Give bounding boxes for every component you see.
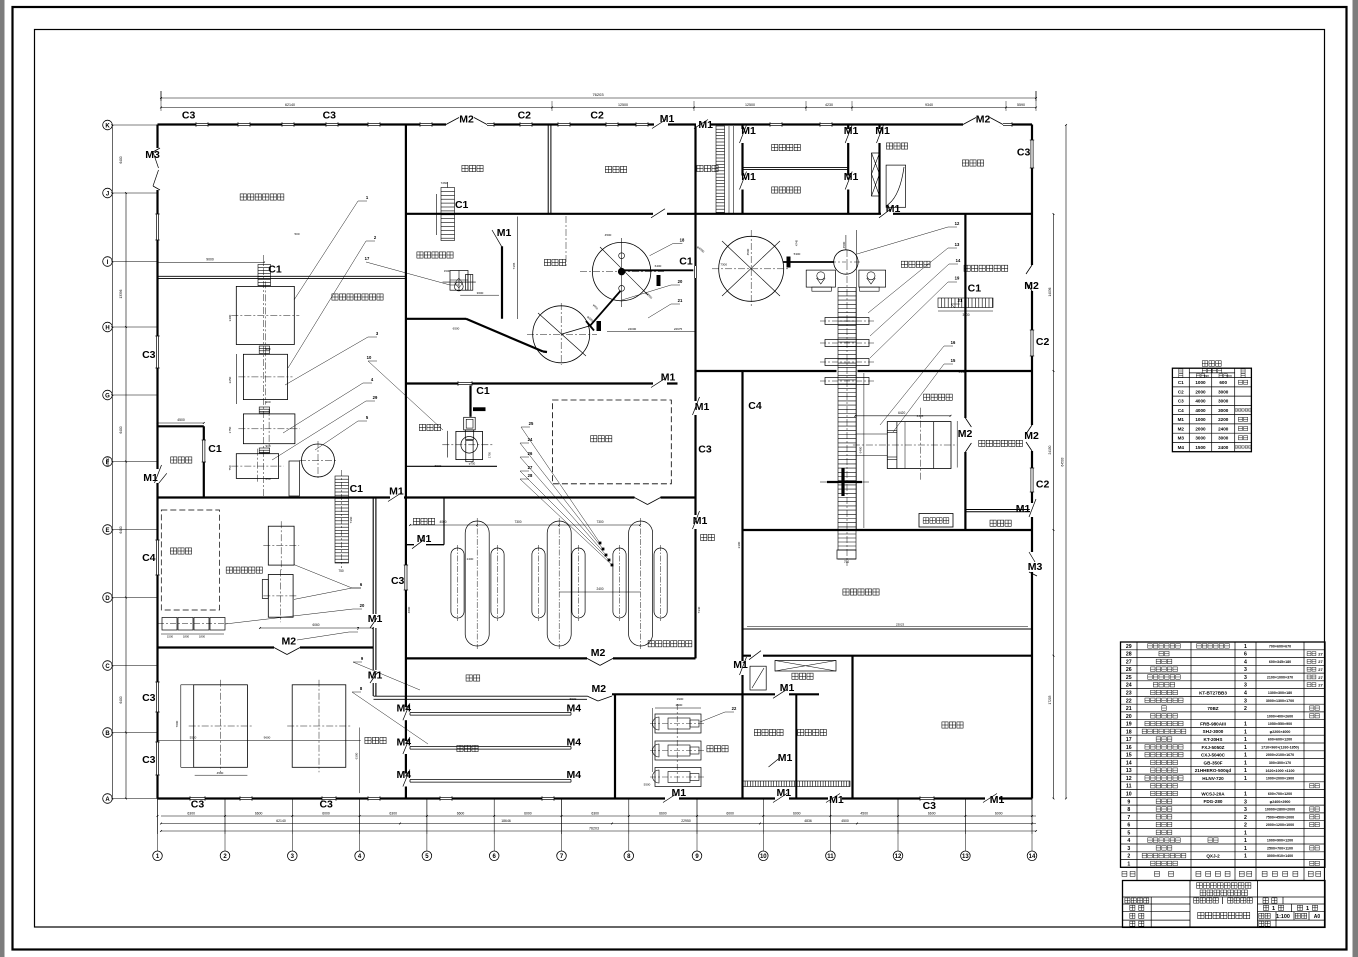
svg-text:10: 10	[367, 355, 372, 360]
svg-text:3: 3	[1244, 799, 1247, 805]
svg-text:C3: C3	[142, 754, 156, 766]
svg-text:28: 28	[1126, 652, 1132, 658]
svg-text:3000: 3000	[1195, 436, 1206, 441]
svg-text:6000: 6000	[524, 811, 532, 815]
svg-text:M1: M1	[698, 119, 713, 131]
svg-text:C1: C1	[679, 256, 693, 268]
svg-text:24000: 24000	[628, 327, 637, 331]
svg-text:1750: 1750	[228, 426, 232, 433]
svg-text:2400: 2400	[1218, 445, 1229, 450]
svg-text:1000: 1000	[1195, 417, 1206, 422]
svg-text:2400: 2400	[596, 587, 603, 591]
svg-text:D: D	[105, 596, 110, 602]
svg-text:13: 13	[1126, 768, 1132, 774]
svg-text:C3: C3	[923, 800, 937, 812]
svg-text:2500×700×1100: 2500×700×1100	[1267, 847, 1293, 851]
svg-text:300×300×170: 300×300×170	[1269, 761, 1291, 765]
svg-text:22: 22	[732, 706, 737, 711]
svg-text:2000×2100×1670: 2000×2100×1670	[1266, 753, 1294, 757]
svg-text:68600: 68600	[106, 457, 110, 466]
svg-text:M1: M1	[1016, 503, 1031, 515]
svg-text:M1: M1	[660, 113, 675, 125]
svg-text:C1: C1	[476, 385, 490, 397]
svg-text:6300: 6300	[591, 811, 599, 815]
svg-text:20: 20	[360, 603, 365, 608]
svg-text:10: 10	[760, 854, 767, 860]
svg-text:22950: 22950	[681, 819, 691, 823]
svg-text:M3: M3	[1028, 561, 1043, 573]
svg-text:14036: 14036	[1048, 287, 1052, 296]
svg-text:11: 11	[827, 854, 834, 860]
svg-text:M1: M1	[693, 515, 708, 527]
svg-text:14: 14	[956, 258, 961, 263]
svg-text:2400: 2400	[467, 557, 474, 561]
svg-text:H: H	[105, 325, 109, 331]
svg-text:1: 1	[1244, 760, 1247, 766]
svg-text:4836: 4836	[804, 819, 812, 823]
svg-text:C1: C1	[1178, 380, 1184, 385]
svg-text:62140: 62140	[276, 819, 286, 823]
svg-text:2: 2	[1244, 823, 1247, 829]
svg-text:M1: M1	[417, 533, 432, 545]
svg-text:2000: 2000	[1195, 426, 1206, 431]
svg-text:650: 650	[265, 477, 270, 481]
svg-text:B: B	[105, 731, 110, 737]
svg-text:3: 3	[1244, 667, 1247, 673]
svg-text:6350: 6350	[959, 370, 966, 374]
svg-text:3000×910×1400: 3000×910×1400	[1267, 854, 1293, 858]
svg-text:2250: 2250	[228, 376, 232, 383]
svg-text:2100×1000×370: 2100×1000×370	[1267, 676, 1293, 680]
svg-text:M1: M1	[143, 472, 158, 484]
svg-text:12500: 12500	[618, 103, 628, 107]
svg-text:3: 3	[1244, 675, 1247, 681]
svg-text:1500: 1500	[1195, 445, 1206, 450]
svg-text:2300: 2300	[737, 541, 741, 548]
svg-text:22975: 22975	[674, 327, 683, 331]
svg-text:7360: 7360	[349, 516, 353, 523]
svg-text:1: 1	[1244, 838, 1247, 844]
svg-text:FDG-280: FDG-280	[1204, 799, 1223, 804]
svg-text:5: 5	[1127, 830, 1130, 836]
svg-text:GB-350F: GB-350F	[1204, 760, 1223, 765]
svg-text:27: 27	[1126, 659, 1132, 665]
svg-text:C1: C1	[455, 199, 469, 211]
svg-text:26: 26	[528, 451, 533, 456]
svg-text:C3: C3	[182, 110, 196, 122]
svg-text:M1: M1	[990, 794, 1005, 806]
svg-text:19: 19	[1126, 722, 1132, 728]
svg-text:20: 20	[1126, 714, 1132, 720]
svg-text:700×600×670: 700×600×670	[1269, 645, 1291, 649]
svg-text:4500: 4500	[860, 811, 868, 815]
svg-text:M4: M4	[567, 703, 582, 715]
svg-text:1: 1	[1272, 906, 1275, 912]
svg-text:6000: 6000	[726, 811, 734, 815]
svg-text:C2: C2	[1178, 389, 1184, 394]
svg-text:21: 21	[678, 298, 683, 303]
svg-text:HLNV-720: HLNV-720	[1202, 776, 1224, 781]
svg-text:6000: 6000	[322, 811, 330, 815]
svg-text:4000: 4000	[439, 520, 446, 524]
svg-text:23023: 23023	[896, 623, 905, 627]
svg-text:1800: 1800	[183, 635, 190, 639]
svg-text:2000×1200×1000: 2000×1200×1000	[1266, 823, 1294, 827]
svg-text:φ2200×4000: φ2200×4000	[1270, 730, 1291, 734]
svg-text:4000: 4000	[1195, 399, 1206, 404]
svg-text:17: 17	[1126, 737, 1132, 743]
svg-text:M1: M1	[829, 794, 844, 806]
svg-text:C1: C1	[208, 443, 222, 455]
svg-text:C3: C3	[1178, 399, 1184, 404]
svg-text:SHJ-3000: SHJ-3000	[1203, 729, 1224, 734]
svg-text:62140: 62140	[285, 103, 295, 107]
svg-text:6400: 6400	[859, 446, 863, 453]
svg-text:M2: M2	[282, 636, 297, 648]
svg-text:6400: 6400	[119, 156, 123, 163]
svg-text:18646: 18646	[501, 819, 511, 823]
svg-text:6600: 6600	[255, 811, 263, 815]
svg-text:KT-20HS: KT-20HS	[1204, 737, 1223, 742]
svg-text:1: 1	[1244, 753, 1247, 759]
svg-text:9000: 9000	[206, 258, 214, 262]
svg-text:M3: M3	[1178, 436, 1185, 441]
svg-text:C3: C3	[323, 110, 337, 122]
svg-text:4000: 4000	[1195, 408, 1206, 413]
svg-text:1: 1	[1244, 737, 1247, 743]
svg-text:φ750: φ750	[469, 462, 476, 466]
svg-text:1: 1	[1244, 768, 1247, 774]
svg-text:600×345×180: 600×345×180	[1269, 660, 1291, 664]
svg-text:910: 910	[265, 444, 270, 448]
svg-text:QXJ-2: QXJ-2	[1206, 854, 1220, 859]
svg-text:13: 13	[955, 242, 960, 247]
svg-text:2: 2	[1244, 815, 1247, 821]
svg-text:M1: M1	[780, 682, 795, 694]
svg-text:6600: 6600	[457, 811, 465, 815]
svg-text:750: 750	[844, 560, 850, 564]
svg-text:K: K	[105, 123, 110, 129]
svg-text:M2: M2	[976, 114, 991, 126]
svg-text:6400: 6400	[119, 526, 123, 533]
svg-text:M2: M2	[958, 428, 973, 440]
svg-text:C2: C2	[1036, 479, 1050, 491]
svg-text:2900: 2900	[676, 703, 683, 707]
svg-text:5500: 5500	[570, 697, 577, 701]
svg-text:600×700×1200: 600×700×1200	[1268, 792, 1292, 796]
svg-text:29: 29	[373, 395, 378, 400]
svg-text:M2: M2	[1024, 280, 1039, 292]
svg-text:C2: C2	[590, 110, 604, 122]
svg-text:4500: 4500	[841, 819, 849, 823]
svg-text:7: 7	[1127, 815, 1130, 821]
svg-text:C: C	[105, 664, 110, 670]
svg-text:6300: 6300	[389, 811, 397, 815]
svg-text:27: 27	[1318, 659, 1323, 664]
svg-text:7260: 7260	[441, 181, 448, 185]
svg-text:6300: 6300	[187, 811, 195, 815]
svg-text:15: 15	[1126, 753, 1132, 759]
svg-text:KT-BT27BB3: KT-BT27BB3	[1199, 690, 1227, 695]
svg-text:3: 3	[1244, 698, 1247, 704]
svg-text:7340: 7340	[697, 606, 701, 613]
svg-text:4: 4	[1244, 691, 1247, 697]
svg-text:C3: C3	[391, 575, 405, 587]
svg-text:6300: 6300	[355, 752, 359, 759]
svg-text:3: 3	[1127, 846, 1130, 852]
svg-text:2900: 2900	[677, 697, 684, 701]
svg-text:15: 15	[951, 358, 956, 363]
svg-text:3: 3	[1244, 683, 1247, 689]
svg-text:1: 1	[1127, 861, 1130, 867]
svg-text:1: 1	[1244, 792, 1247, 798]
svg-text:1710×960×(1260-1850): 1710×960×(1260-1850)	[1261, 746, 1300, 750]
svg-text:C2: C2	[518, 110, 532, 122]
svg-text:29: 29	[1126, 644, 1132, 650]
svg-text:2000: 2000	[1195, 389, 1206, 394]
svg-text:3400: 3400	[228, 314, 232, 321]
svg-text:1000: 1000	[1195, 380, 1206, 385]
svg-text:J: J	[106, 191, 109, 197]
svg-text:M2: M2	[459, 114, 474, 126]
svg-text:21: 21	[1126, 706, 1132, 712]
svg-text:φ2400×2900: φ2400×2900	[1270, 800, 1291, 804]
svg-text:C4: C4	[1178, 408, 1184, 413]
svg-text:FXJ-5050Z: FXJ-5050Z	[1202, 745, 1225, 750]
svg-text:M1: M1	[741, 171, 756, 183]
svg-text:3000×1300×1700: 3000×1300×1700	[1266, 699, 1294, 703]
svg-text:3000: 3000	[1218, 408, 1229, 413]
svg-text:10000×2800×2000: 10000×2800×2000	[1265, 808, 1295, 812]
svg-text:18: 18	[680, 238, 685, 243]
svg-text:2200: 2200	[1218, 417, 1229, 422]
svg-text:5500: 5500	[644, 783, 651, 787]
svg-text:6: 6	[1127, 823, 1130, 829]
svg-text:M1: M1	[368, 670, 383, 682]
svg-text:17: 17	[365, 256, 370, 261]
svg-text:10: 10	[1126, 792, 1132, 798]
svg-text:M1: M1	[1178, 417, 1185, 422]
svg-text:C4: C4	[748, 400, 762, 412]
svg-text:4500: 4500	[217, 771, 224, 775]
svg-text:3000: 3000	[962, 313, 969, 317]
svg-text:8: 8	[1127, 807, 1130, 813]
svg-text:6420: 6420	[898, 411, 905, 415]
svg-text:G: G	[105, 393, 110, 399]
svg-text:M1: M1	[777, 787, 792, 799]
svg-text:27: 27	[1318, 683, 1323, 688]
svg-text:6060: 6060	[312, 623, 319, 627]
svg-text:3000: 3000	[1218, 436, 1229, 441]
svg-text:11: 11	[1126, 784, 1132, 790]
svg-text:1: 1	[1244, 854, 1247, 860]
svg-text:4: 4	[1127, 838, 1130, 844]
svg-text:M1: M1	[733, 659, 748, 671]
svg-text:4800: 4800	[407, 606, 411, 613]
svg-text:C3: C3	[319, 799, 333, 811]
svg-text:750: 750	[338, 569, 344, 573]
svg-text:M1: M1	[695, 401, 710, 413]
svg-text:1: 1	[1244, 776, 1247, 782]
svg-text:12: 12	[1126, 776, 1132, 782]
svg-text:1000×900×1200: 1000×900×1200	[1267, 839, 1293, 843]
svg-text:27: 27	[528, 465, 533, 470]
svg-text:6600: 6600	[659, 811, 667, 815]
svg-text:6000: 6000	[793, 811, 801, 815]
svg-text:1: 1	[1244, 722, 1247, 728]
svg-text:7500×4500×2000: 7500×4500×2000	[1266, 815, 1294, 819]
svg-text:C2: C2	[1036, 336, 1050, 348]
svg-text:M4: M4	[1178, 445, 1185, 450]
svg-text:1: 1	[1244, 644, 1247, 650]
svg-text:76203: 76203	[592, 92, 604, 97]
svg-text:M2: M2	[1024, 430, 1039, 442]
svg-text:M4: M4	[397, 737, 412, 749]
svg-text:C3: C3	[191, 799, 205, 811]
svg-text:20: 20	[678, 279, 683, 284]
svg-text:WCSJ-20A: WCSJ-20A	[1201, 791, 1225, 796]
svg-text:FRB-980AIII: FRB-980AIII	[1200, 722, 1226, 727]
svg-text:M2: M2	[1178, 426, 1185, 431]
svg-text:70BZ: 70BZ	[1207, 706, 1218, 711]
svg-text:E: E	[105, 528, 109, 534]
svg-text:M1: M1	[389, 485, 404, 497]
svg-text:16: 16	[951, 340, 956, 345]
svg-text:1: 1	[1244, 745, 1247, 751]
svg-text:22: 22	[1126, 698, 1132, 704]
svg-text:7000: 7000	[175, 720, 179, 727]
svg-text:6500: 6500	[453, 327, 460, 331]
svg-text:3000: 3000	[1218, 399, 1229, 404]
svg-text:7300: 7300	[596, 520, 603, 524]
svg-text:3000: 3000	[1218, 389, 1229, 394]
svg-text:1620×1000 ×1100: 1620×1000 ×1100	[1266, 769, 1295, 773]
svg-text:M3: M3	[145, 149, 160, 161]
svg-text:12: 12	[955, 221, 960, 226]
svg-text:1: 1	[1306, 906, 1309, 912]
svg-text:24150: 24150	[1048, 445, 1052, 454]
svg-text:M4: M4	[397, 769, 412, 781]
svg-text:76203: 76203	[589, 827, 599, 831]
svg-text:9: 9	[1127, 799, 1130, 805]
svg-text:12: 12	[895, 854, 902, 860]
svg-text:5300: 5300	[794, 252, 801, 256]
svg-text:23: 23	[1126, 691, 1132, 697]
svg-text:4500: 4500	[605, 233, 612, 237]
svg-text:27: 27	[1318, 652, 1323, 657]
svg-text:1: 1	[1244, 830, 1247, 836]
svg-text:C3: C3	[698, 444, 712, 456]
svg-text:6400: 6400	[119, 696, 123, 703]
svg-text:900: 900	[265, 347, 270, 351]
svg-text:1500: 1500	[167, 635, 174, 639]
svg-text:M1: M1	[844, 125, 859, 137]
svg-text:M1: M1	[844, 171, 859, 183]
svg-text:1: 1	[1244, 729, 1247, 735]
svg-text:A: A	[105, 797, 110, 803]
svg-text:28: 28	[528, 473, 533, 478]
svg-text:6000: 6000	[995, 811, 1003, 815]
svg-text:M1: M1	[741, 125, 756, 137]
svg-text:600: 600	[1219, 380, 1227, 385]
svg-text:C1: C1	[350, 483, 364, 495]
svg-text:1:100: 1:100	[1276, 914, 1290, 920]
svg-text:6: 6	[1244, 652, 1247, 658]
svg-text:1050×550×900: 1050×550×900	[1268, 722, 1292, 726]
svg-text:9600: 9600	[264, 736, 271, 740]
svg-text:7300: 7300	[720, 262, 727, 266]
svg-text:3600: 3600	[477, 291, 484, 295]
svg-text:4230: 4230	[825, 103, 833, 107]
svg-text:27: 27	[1318, 675, 1323, 680]
svg-text:1300×300×180: 1300×300×180	[1268, 691, 1292, 695]
svg-text:600×600×1200: 600×600×1200	[1268, 738, 1292, 742]
svg-text:2: 2	[1127, 854, 1130, 860]
svg-text:27: 27	[1318, 667, 1323, 672]
svg-text:M1: M1	[368, 613, 383, 625]
svg-text:900: 900	[265, 400, 270, 404]
svg-text:4745: 4745	[794, 239, 798, 246]
svg-text:500: 500	[294, 232, 299, 236]
svg-text:14: 14	[1029, 854, 1036, 860]
svg-text:14: 14	[1126, 760, 1132, 766]
svg-text:1500: 1500	[444, 269, 451, 273]
svg-text:9340: 9340	[925, 103, 933, 107]
svg-text:M4: M4	[397, 703, 412, 715]
svg-text:24: 24	[1126, 683, 1132, 689]
svg-text:A0: A0	[1314, 914, 1321, 920]
svg-text:M1: M1	[661, 372, 676, 384]
svg-text:12500: 12500	[745, 103, 755, 107]
svg-text:1000×2000×1900: 1000×2000×1900	[1266, 777, 1294, 781]
svg-text:2400: 2400	[1218, 426, 1229, 431]
svg-text:25: 25	[529, 421, 534, 426]
svg-text:C3: C3	[1017, 147, 1031, 159]
svg-text:M1: M1	[875, 125, 890, 137]
svg-text:M1: M1	[778, 752, 793, 764]
svg-text:19: 19	[955, 276, 960, 281]
svg-text:13: 13	[962, 854, 969, 860]
svg-text:5520: 5520	[190, 736, 197, 740]
svg-text:4500: 4500	[842, 241, 846, 248]
svg-text:2: 2	[1244, 706, 1247, 712]
svg-text:64503: 64503	[1061, 457, 1065, 466]
svg-text:6420: 6420	[917, 414, 924, 418]
svg-text:6400: 6400	[119, 426, 123, 433]
svg-text:7365: 7365	[512, 262, 516, 269]
svg-text:4500: 4500	[177, 418, 185, 422]
svg-text:C3: C3	[142, 349, 156, 361]
svg-text:M2: M2	[592, 683, 607, 695]
svg-text:18: 18	[1126, 729, 1132, 735]
svg-text:CXJ-5040C: CXJ-5040C	[1201, 753, 1226, 758]
svg-text:21: 21	[958, 298, 963, 303]
svg-text:16: 16	[1126, 745, 1132, 751]
svg-text:13396: 13396	[119, 289, 123, 298]
svg-text:5500: 5500	[435, 464, 442, 468]
svg-text:1800: 1800	[199, 635, 206, 639]
svg-text:26: 26	[1126, 667, 1132, 673]
svg-text:1000×400×2600: 1000×400×2600	[1267, 714, 1293, 718]
svg-text:5590: 5590	[1017, 103, 1025, 107]
svg-text:1: 1	[1244, 846, 1247, 852]
svg-text:4: 4	[1244, 659, 1247, 665]
svg-text:3: 3	[1244, 807, 1247, 813]
svg-text:M1: M1	[672, 787, 687, 799]
svg-text:21HHERO-500qd: 21HHERO-500qd	[1195, 768, 1232, 773]
svg-text:4500: 4500	[746, 248, 750, 255]
svg-text:17203: 17203	[1048, 695, 1052, 704]
